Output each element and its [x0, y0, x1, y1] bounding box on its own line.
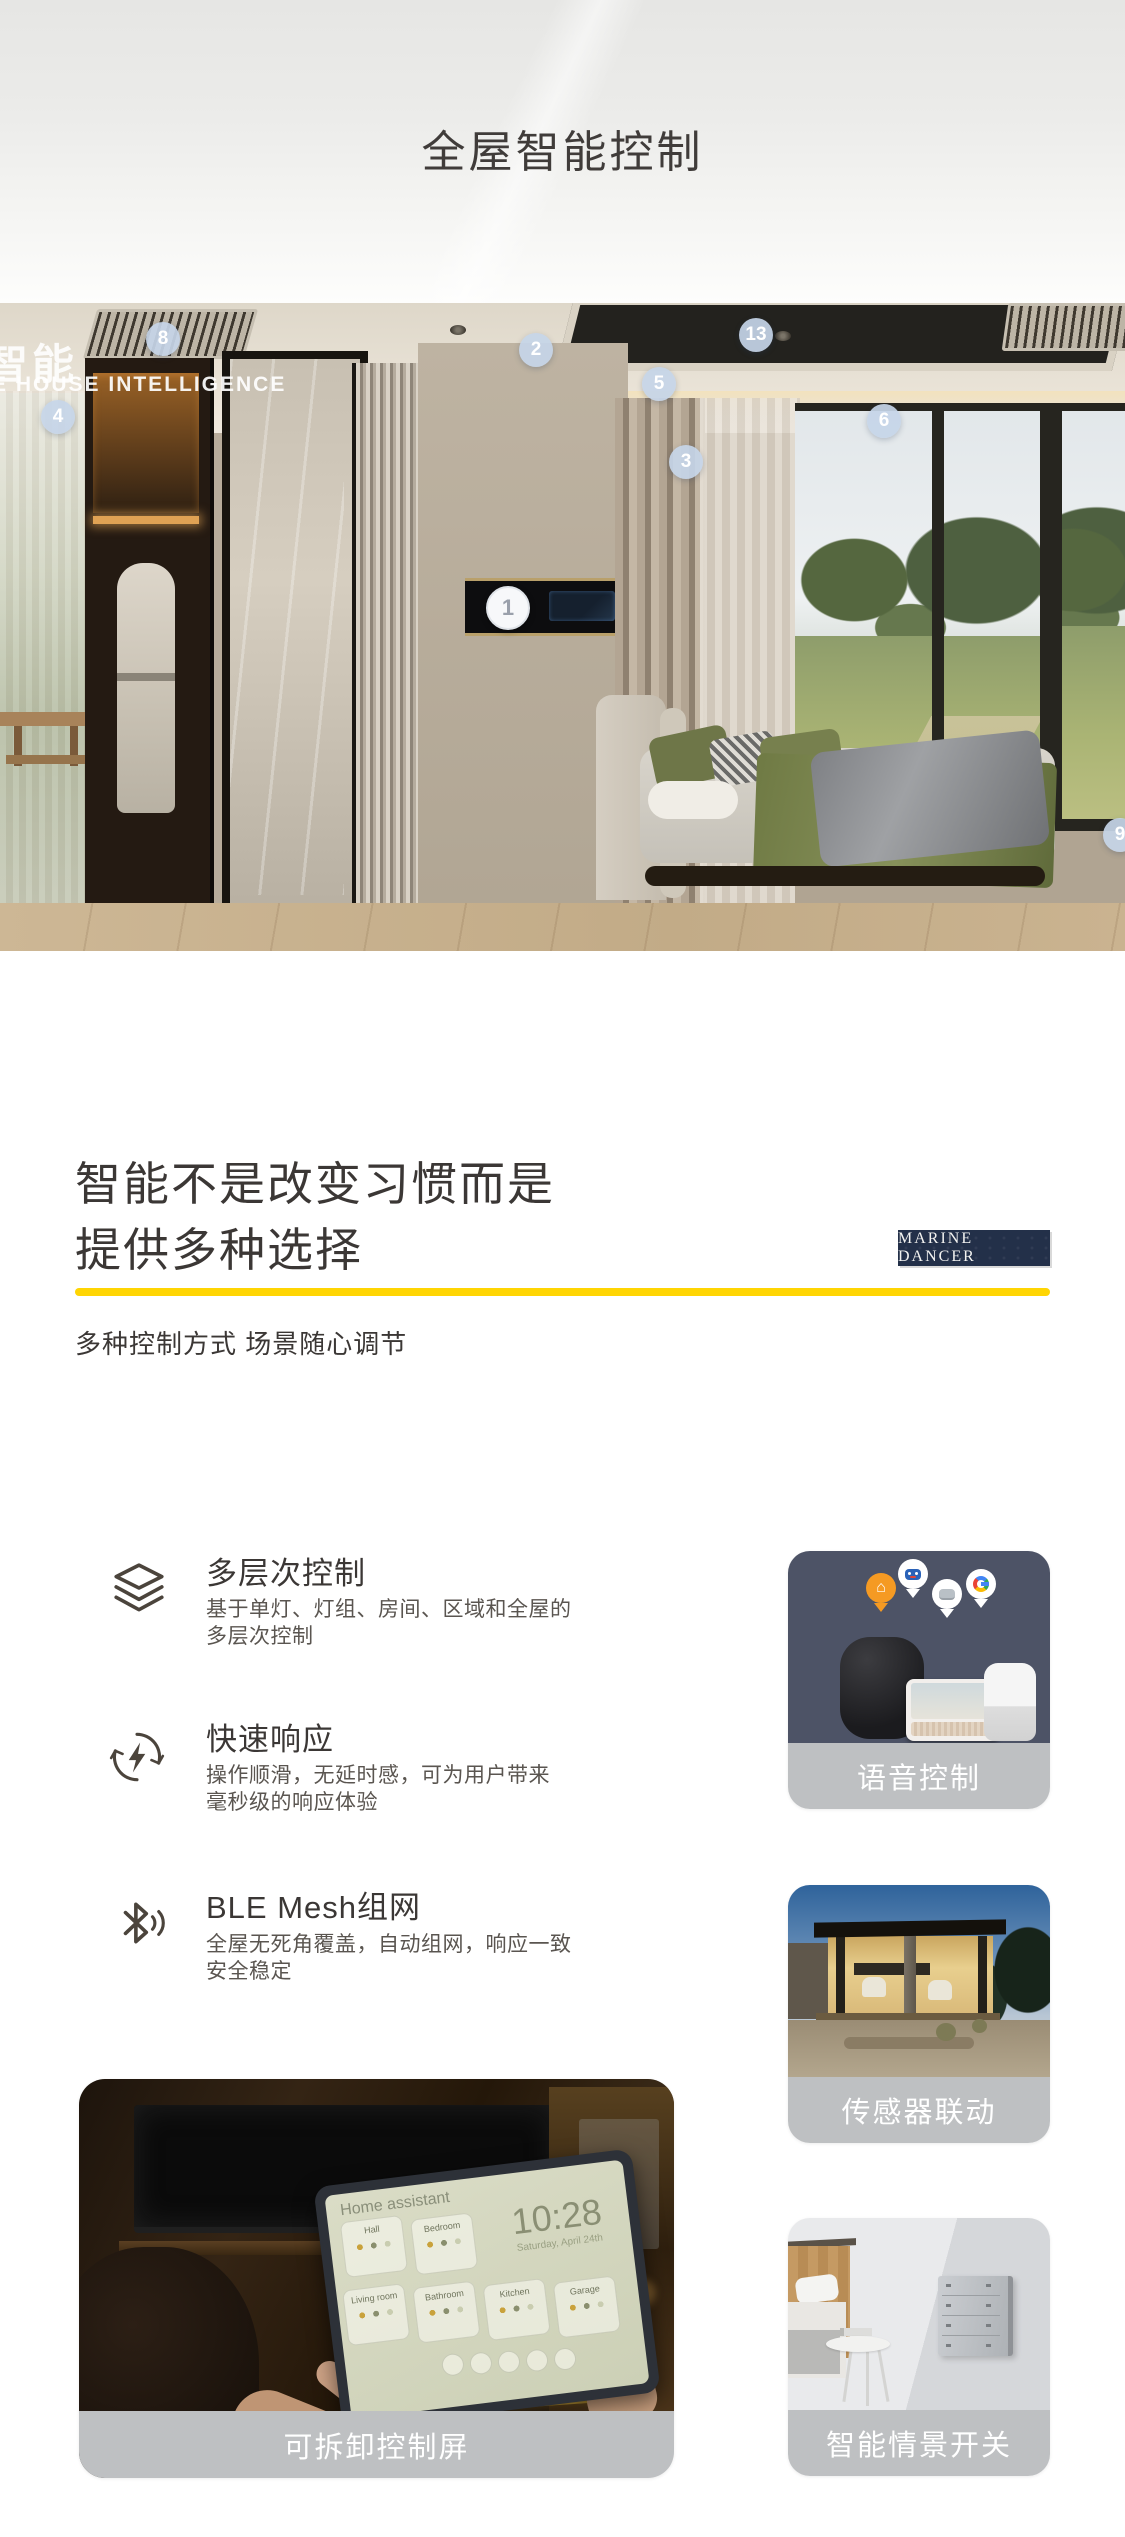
card-caption: 传感器联动	[788, 2077, 1050, 2143]
smart-speaker-white	[984, 1663, 1036, 1741]
smart-display-base	[911, 1722, 995, 1736]
hotspot-marker-13[interactable]: 13	[739, 318, 773, 352]
hero-window-side	[1062, 411, 1125, 819]
hero-image: 智能 E HOUSE INTELLIGENCE 8 2 13 5 6 4 3 9…	[0, 303, 1125, 951]
bluetooth-mesh-icon	[112, 1896, 166, 1950]
pavilion-counter	[854, 1963, 930, 1975]
switch-label-mark	[986, 2344, 991, 2347]
switch-row-divider	[942, 2315, 1000, 2316]
room-tile-controls	[356, 2305, 398, 2326]
hero-spotlight	[775, 331, 791, 341]
window-trees	[1062, 456, 1125, 646]
hotspot-marker-3[interactable]: 3	[669, 445, 703, 479]
fast-response-icon	[106, 1726, 168, 1788]
side-table	[826, 2336, 890, 2352]
brand-badge: MARINE DANCER	[898, 1230, 1050, 1266]
bed-base-shadow	[645, 866, 1045, 886]
hero-bench-shelf	[6, 755, 86, 764]
hero-overlay-text-en: E HOUSE INTELLIGENCE	[0, 373, 286, 397]
switch-label-mark	[986, 2304, 991, 2307]
room-tile-label: Hall	[341, 2221, 402, 2238]
page-header: 全屋智能控制	[0, 0, 1125, 303]
tablet-quick-button[interactable]	[525, 2348, 550, 2373]
room-tile[interactable]: Kitchen	[482, 2278, 550, 2341]
room-tile-controls	[423, 2235, 465, 2256]
room-tile-controls	[426, 2303, 468, 2324]
sensor-card-image	[788, 1885, 1050, 2077]
switch-label-mark	[946, 2324, 951, 2327]
feature-title-ble-mesh: BLE Mesh组网	[206, 1882, 421, 1927]
tablet-quick-button[interactable]	[469, 2351, 494, 2376]
floor-plank-lines	[0, 903, 1125, 951]
tablet-quick-button[interactable]	[553, 2347, 578, 2372]
window-lawn	[1062, 626, 1125, 819]
control-panel-screen	[549, 591, 615, 621]
card-caption: 可拆卸控制屏	[79, 2411, 674, 2478]
page-title: 全屋智能控制	[0, 116, 1125, 180]
room-tile-label: Bedroom	[412, 2218, 473, 2235]
tablet-card-image: Home assistant Hall Bedroom Living room	[79, 2079, 674, 2412]
door-glass-reflection	[230, 359, 344, 895]
garden-stones	[844, 2037, 974, 2049]
tablet-quick-button[interactable]	[441, 2352, 466, 2377]
book-on-table	[840, 2328, 872, 2336]
pavilion-chair	[928, 1980, 952, 2000]
room-tile-controls	[496, 2300, 538, 2321]
feature-desc-line: 全屋无死角覆盖，自动组网，响应一致	[206, 1928, 572, 1958]
hero-bench	[0, 712, 92, 726]
card-scene-switch[interactable]: 智能情景开关	[788, 2218, 1050, 2476]
bed-blanket	[788, 2330, 840, 2374]
speaker-pin-icon	[932, 1579, 962, 1618]
room-tile-label: Garage	[554, 2281, 615, 2298]
feature-title-fast-response: 快速响应	[206, 1714, 334, 1759]
garden-bush	[936, 2023, 956, 2041]
hotspot-marker-1[interactable]: 1	[486, 586, 530, 630]
room-tile-label: Kitchen	[484, 2284, 545, 2301]
switch-label-mark	[946, 2284, 951, 2287]
room-tile[interactable]: Bedroom	[410, 2212, 478, 2275]
garden-bush	[972, 2019, 987, 2033]
hotspot-marker-6[interactable]: 6	[867, 404, 901, 438]
bed-gray-throw	[810, 729, 1051, 867]
pavilion-column	[836, 1936, 845, 2016]
table-leg	[878, 2350, 890, 2402]
switch-label-mark	[946, 2344, 951, 2347]
room-tile[interactable]: Living room	[342, 2283, 410, 2346]
pavilion-column	[978, 1936, 987, 2016]
hero-fluted-glass	[352, 363, 426, 903]
feature-desc-line: 操作顺滑，无延时感，可为用户带来	[206, 1759, 550, 1789]
layers-icon	[110, 1560, 168, 1618]
hotspot-marker-8[interactable]: 8	[146, 322, 180, 356]
google-pin-icon	[966, 1569, 996, 1608]
hotspot-marker-4[interactable]: 4	[41, 400, 75, 434]
card-sensor-linkage[interactable]: 传感器联动	[788, 1885, 1050, 2143]
hero-wardrobe	[85, 358, 214, 903]
homekit-pin-icon: ⌂	[866, 1573, 896, 1612]
switch-row-divider	[942, 2335, 1000, 2336]
switch-card-image	[788, 2218, 1050, 2410]
assistant-robot-pin-icon	[898, 1559, 928, 1598]
card-voice-control[interactable]: ⌂	[788, 1551, 1050, 1809]
table-leg	[866, 2352, 869, 2406]
switch-label-mark	[986, 2324, 991, 2327]
card-caption: 语音控制	[788, 1743, 1050, 1809]
card-detachable-screen[interactable]: Home assistant Hall Bedroom Living room	[79, 2079, 674, 2478]
feature-desc-line: 安全稳定	[206, 1955, 292, 1985]
control-tablet: Home assistant Hall Bedroom Living room	[313, 2148, 660, 2430]
wardrobe-led-strip	[93, 516, 199, 524]
hotspot-marker-5[interactable]: 5	[642, 367, 676, 401]
feature-desc-line: 多层次控制	[206, 1620, 314, 1650]
room-tile-controls	[566, 2298, 608, 2319]
room-tile-label: Living room	[344, 2289, 405, 2306]
room-tile-controls	[353, 2237, 395, 2258]
bed-bolster-pillow	[648, 781, 738, 819]
switch-row-divider	[942, 2295, 1000, 2296]
room-tile[interactable]: Hall	[340, 2215, 408, 2278]
section-heading-line2: 提供多种选择	[75, 1214, 363, 1280]
switch-label-mark	[946, 2304, 951, 2307]
hero-ac-vent-right	[1002, 303, 1125, 351]
tablet-quick-button[interactable]	[497, 2350, 522, 2375]
feature-desc-line: 毫秒级的响应体验	[206, 1786, 378, 1816]
section-subtitle: 多种控制方式 场景随心调节	[75, 1324, 407, 1361]
accent-divider	[75, 1288, 1050, 1296]
brand-badge-label: MARINE DANCER	[898, 1230, 1050, 1266]
hero-left-sheer-curtain	[0, 391, 92, 903]
hero-bathroom-door	[222, 351, 368, 919]
room-tile[interactable]: Garage	[553, 2275, 621, 2338]
card-caption: 智能情景开关	[788, 2410, 1050, 2476]
hero-spotlight	[450, 325, 466, 335]
tablet-screen: Home assistant Hall Bedroom Living room	[324, 2160, 649, 2420]
voice-card-image: ⌂	[788, 1551, 1050, 1743]
section-heading-line1: 智能不是改变习惯而是	[75, 1148, 555, 1214]
room-tile-label: Bathroom	[414, 2287, 475, 2304]
room-tile[interactable]: Bathroom	[412, 2281, 480, 2344]
pavilion-center-column	[904, 1936, 916, 2016]
pavilion-chair	[862, 1977, 886, 1997]
hanging-robe	[117, 563, 175, 813]
product-detail-page: 全屋智能控制	[0, 0, 1125, 2537]
feature-desc-line: 基于单灯、灯组、房间、区域和全屋的	[206, 1593, 572, 1623]
hotspot-marker-2[interactable]: 2	[519, 333, 553, 367]
smart-display-screen	[911, 1683, 995, 1719]
switch-label-mark	[986, 2284, 991, 2287]
scene-switch-panel	[938, 2276, 1013, 2356]
feature-title-multilevel: 多层次控制	[206, 1548, 366, 1593]
robe-belt	[117, 673, 175, 681]
